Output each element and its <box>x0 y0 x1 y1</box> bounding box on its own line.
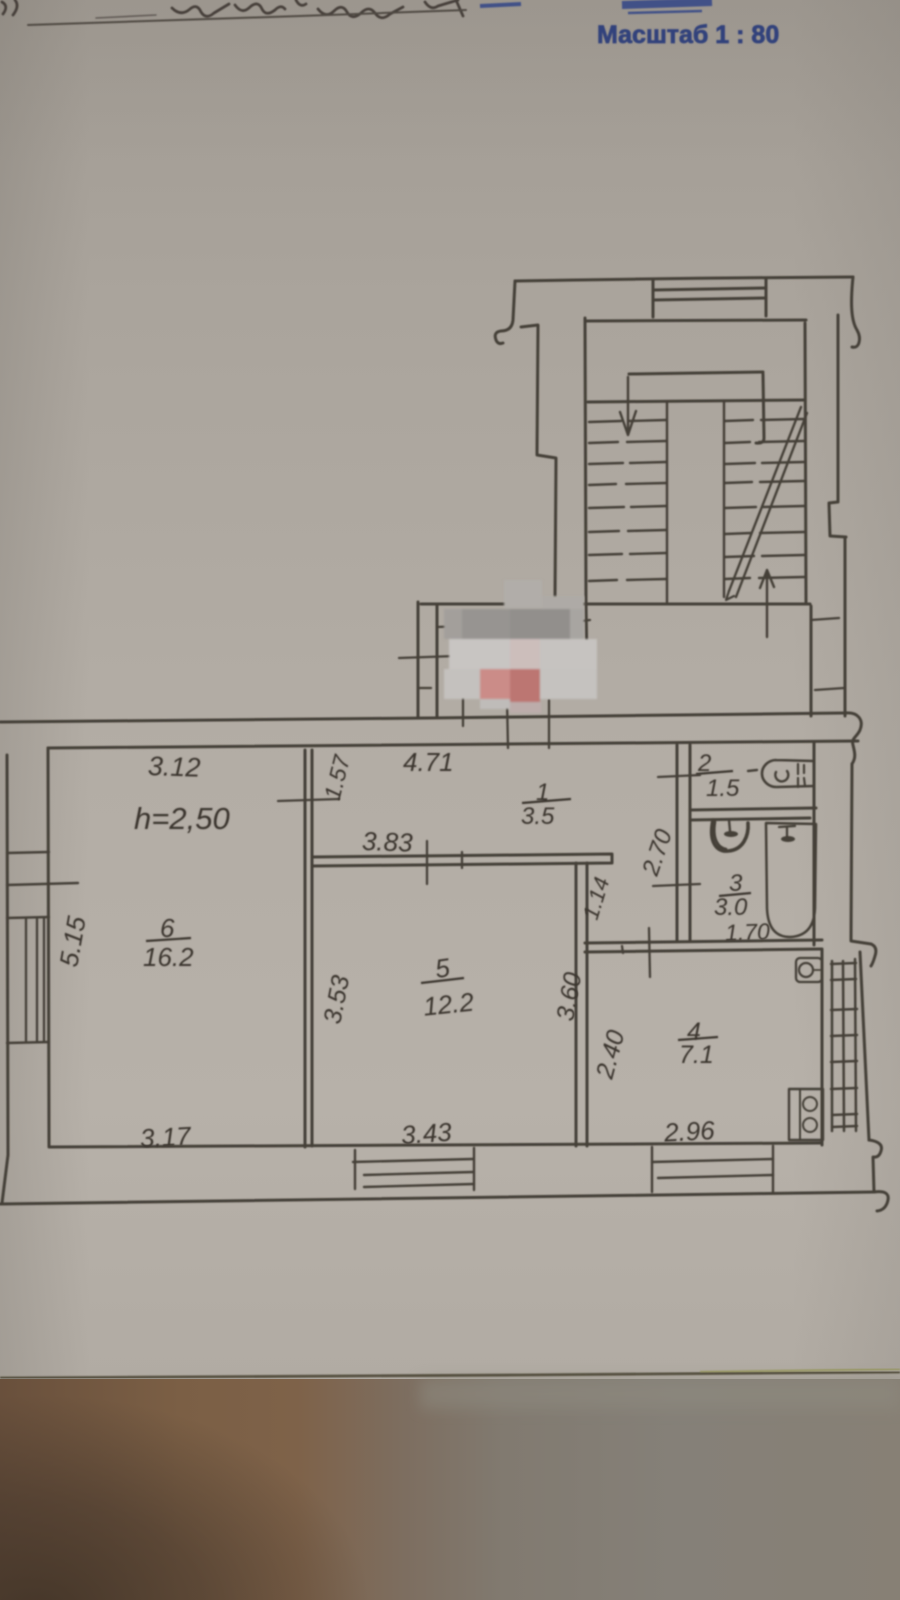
svg-text:1.70: 1.70 <box>725 918 771 946</box>
svg-text:3.12: 3.12 <box>147 751 201 783</box>
svg-text:3.5: 3.5 <box>521 803 555 830</box>
svg-text:12.2: 12.2 <box>422 987 476 1022</box>
svg-text:3.0: 3.0 <box>714 894 748 921</box>
svg-text:4.71: 4.71 <box>403 747 454 777</box>
svg-text:h=2,50: h=2,50 <box>134 801 230 836</box>
svg-text:Масштаб 1 : 80: Масштаб 1 : 80 <box>597 21 779 49</box>
svg-text:1.5: 1.5 <box>706 775 740 802</box>
svg-text:2.96: 2.96 <box>662 1115 716 1148</box>
svg-text:7.1: 7.1 <box>679 1041 714 1069</box>
svg-text:3.43: 3.43 <box>400 1117 453 1150</box>
svg-text:3.17: 3.17 <box>139 1121 193 1154</box>
svg-text:3.83: 3.83 <box>361 826 413 858</box>
svg-text:16.2: 16.2 <box>143 942 194 972</box>
